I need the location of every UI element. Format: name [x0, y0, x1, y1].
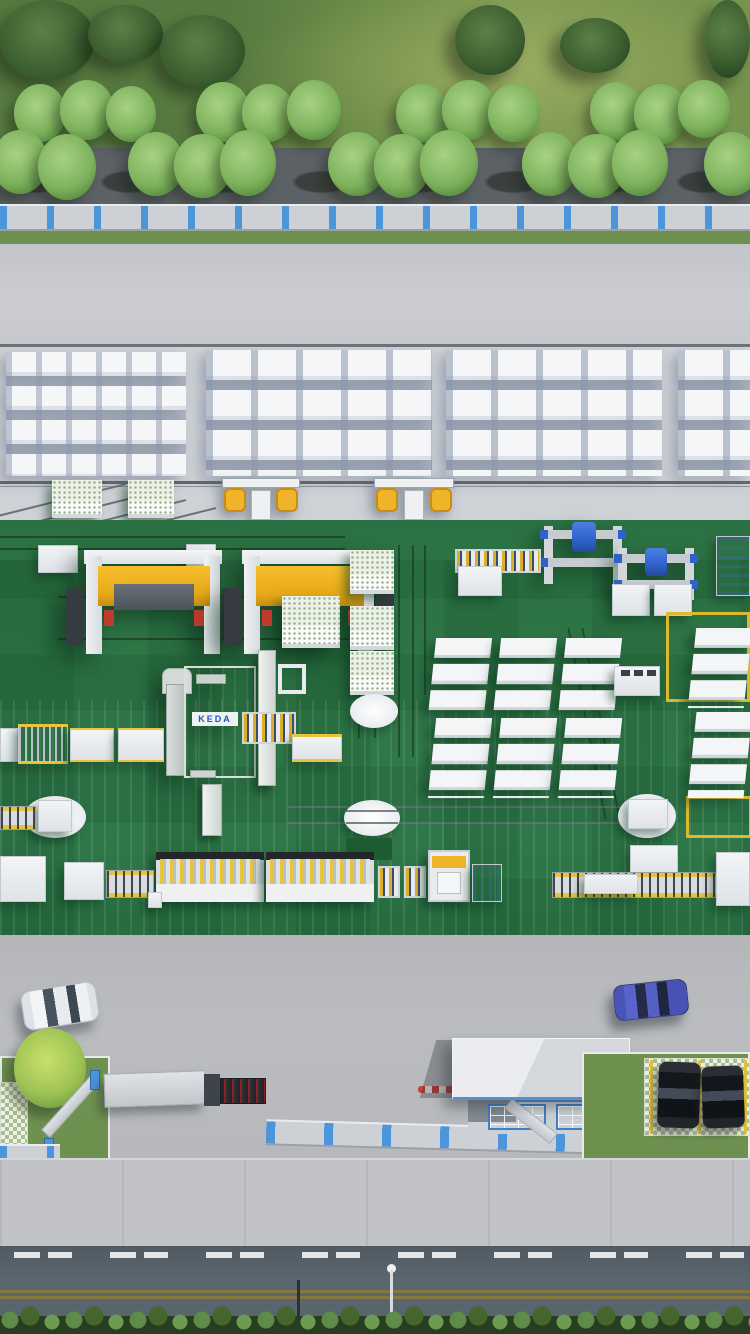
panel-stack-group — [558, 638, 622, 716]
panel-stack-group — [688, 628, 750, 708]
perimeter-fence-top — [0, 204, 750, 231]
rack-conveyor — [552, 872, 728, 898]
cutting-line-module — [156, 852, 264, 902]
panel-stack-group — [428, 718, 492, 798]
dotted-rack — [242, 712, 296, 744]
street-tree — [420, 130, 478, 196]
black-car — [657, 1061, 701, 1128]
transfer-rail — [288, 822, 642, 824]
roller-machine — [18, 724, 68, 764]
parking-line — [744, 1060, 747, 1134]
clamp — [194, 610, 204, 626]
street-tree — [678, 80, 730, 138]
tank-turntable — [350, 694, 398, 728]
block-stack-cluster — [678, 350, 750, 476]
floor-rail — [0, 536, 345, 538]
small-cart — [148, 892, 162, 908]
flat-table-machine — [64, 862, 104, 900]
vent-slot — [634, 670, 643, 676]
panel-conveyor — [292, 734, 342, 762]
transfer-rail — [288, 806, 642, 808]
block-stack-cluster — [206, 350, 432, 476]
street-tree — [220, 130, 276, 196]
gantry-crane — [78, 550, 228, 658]
large-tree — [705, 0, 750, 78]
large-tree — [160, 15, 245, 87]
clamp — [262, 610, 272, 626]
service-step — [190, 770, 216, 778]
hoist-motor — [572, 522, 596, 552]
pad-rail — [346, 822, 398, 824]
small-machine — [458, 566, 502, 596]
vent-slot — [621, 670, 630, 676]
cutter-yellow-band — [432, 856, 466, 868]
ferry-reel-left — [224, 488, 246, 512]
mould-slats — [160, 859, 260, 884]
turntable-pad — [344, 800, 400, 836]
aac-cake-block — [350, 651, 394, 695]
yellow-center-line — [0, 1290, 750, 1293]
street-tree — [287, 80, 341, 140]
panel-stack-group — [493, 638, 557, 716]
parking-line — [650, 1060, 653, 1134]
flat-table-machine — [0, 856, 46, 902]
block-stack-cluster — [446, 350, 662, 476]
hedge-row — [0, 1306, 750, 1334]
floor-rail-vertical — [398, 545, 400, 757]
gantry-top-beam — [84, 550, 222, 564]
yard-edge-line — [0, 344, 750, 347]
sidewalk — [0, 1158, 750, 1248]
small-machine — [38, 545, 78, 573]
roller-table — [70, 728, 114, 762]
ferry-reel-right — [276, 488, 298, 512]
fence-post — [90, 1070, 100, 1090]
cutting-line-module — [266, 852, 374, 902]
marked-zone — [686, 796, 750, 838]
panel-stack-group — [493, 718, 557, 798]
pad-machine — [628, 799, 668, 829]
roller-table — [118, 728, 164, 762]
rack-conveyor — [106, 870, 154, 898]
elevator-tower — [202, 784, 222, 836]
lane-dash-line — [14, 1252, 750, 1258]
dotted-rack — [404, 866, 426, 898]
rack-conveyor — [0, 806, 36, 830]
brand-logo: KEDA — [192, 712, 238, 726]
ferry-cart-body — [251, 490, 271, 520]
aac-cake-block — [350, 550, 394, 594]
panel-stack-group — [687, 712, 750, 798]
grass-strip — [0, 231, 750, 244]
pad-machine — [38, 800, 72, 832]
tilting-unit — [472, 864, 502, 902]
generator-box — [614, 666, 660, 696]
panel-stack-group — [558, 718, 622, 798]
dotted-rack — [378, 866, 400, 898]
top-hatch — [196, 674, 226, 684]
support-frame — [278, 664, 306, 694]
crawler-track — [224, 588, 242, 646]
street-tree — [38, 134, 96, 200]
floor-rail-vertical — [412, 545, 414, 757]
aac-cake-block — [350, 606, 394, 650]
large-tree — [0, 0, 95, 80]
cutter-machine — [428, 850, 470, 902]
machine-box — [716, 536, 750, 596]
cutter-bed — [437, 872, 461, 894]
floor-rail-vertical — [424, 545, 426, 695]
sliding-gate-panel — [103, 1070, 206, 1108]
ferry-reel-right — [430, 488, 452, 512]
upper-road — [0, 244, 750, 344]
large-tree — [560, 18, 630, 73]
street-tree — [612, 130, 668, 196]
gantry-deck — [114, 584, 194, 610]
ferry-beam — [222, 478, 300, 488]
panel-stack-group — [428, 638, 492, 716]
ferry-reel-left — [376, 488, 398, 512]
street-tree — [488, 84, 540, 142]
gate-pillar — [204, 1074, 220, 1106]
block-pallet — [52, 480, 102, 518]
large-tree — [455, 5, 525, 75]
yellow-center-line — [0, 1296, 750, 1299]
block-stack-cluster — [6, 352, 186, 476]
aac-cake-block — [282, 596, 340, 648]
hoist-motor — [645, 548, 667, 576]
retractable-gate — [220, 1078, 266, 1104]
block-pallet — [128, 480, 174, 518]
ferry-beam — [374, 478, 454, 488]
machine-box — [612, 584, 650, 616]
end-machine — [716, 852, 750, 906]
panel-on-conveyor — [584, 874, 638, 894]
vent-slot — [647, 670, 656, 676]
ferry-cart — [222, 476, 300, 522]
pad-rail — [346, 810, 398, 812]
ferry-cart-body — [404, 490, 424, 520]
large-tree — [88, 5, 163, 63]
ferry-cart — [374, 476, 454, 522]
mould-slats — [270, 859, 370, 884]
factory-aerial-view: KEDA — [0, 0, 750, 1334]
clamp — [104, 610, 114, 626]
roller-table — [0, 728, 18, 762]
black-car — [701, 1065, 745, 1128]
duct — [166, 684, 186, 776]
blue-sedan — [612, 978, 689, 1022]
crawler-track — [66, 588, 84, 646]
